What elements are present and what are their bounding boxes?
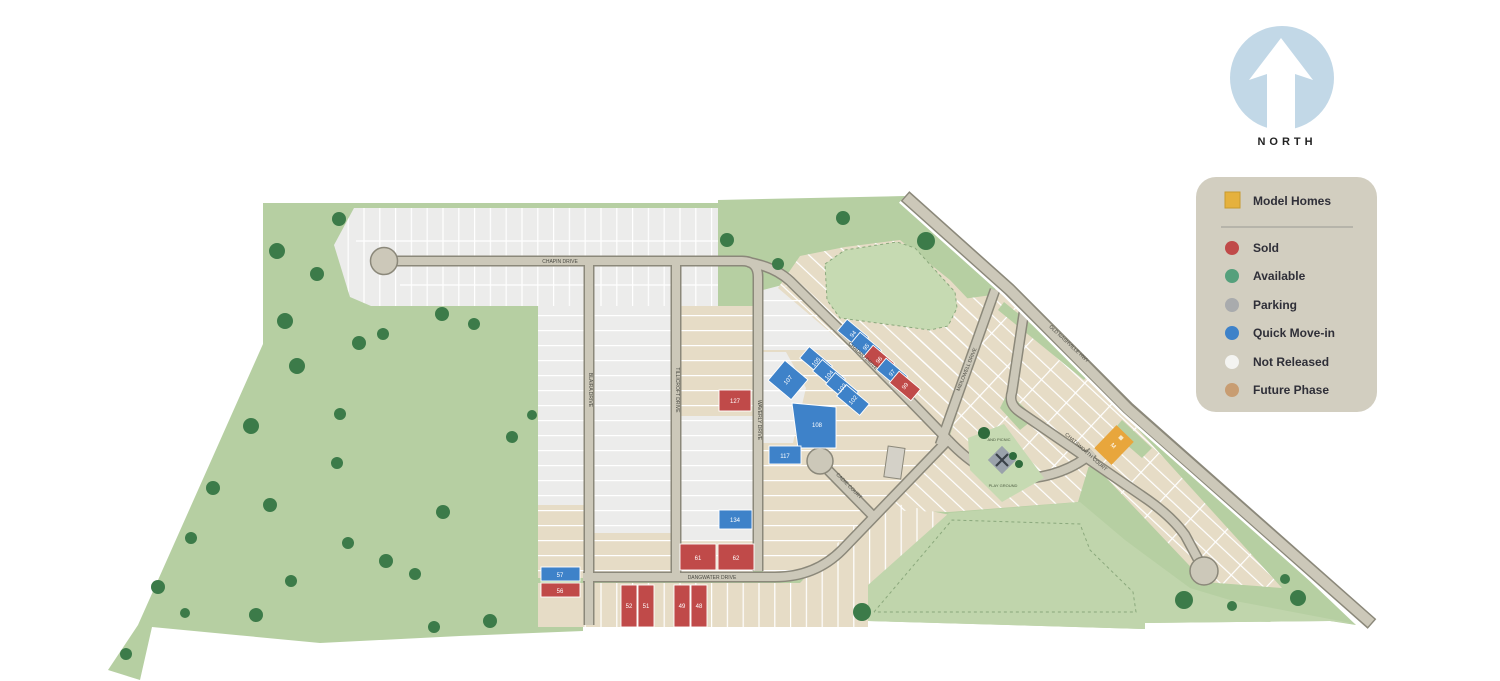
svg-text:PLAY GROUND: PLAY GROUND <box>989 483 1018 488</box>
svg-text:56: 56 <box>557 589 564 595</box>
svg-text:62: 62 <box>733 556 740 562</box>
svg-text:Not Released: Not Released <box>1253 355 1329 369</box>
svg-text:108: 108 <box>812 423 823 429</box>
svg-text:117: 117 <box>780 454 790 460</box>
svg-text:57: 57 <box>557 573 564 579</box>
svg-text:AND PICNIC: AND PICNIC <box>987 437 1010 442</box>
svg-text:52: 52 <box>626 604 633 610</box>
svg-text:Model Homes: Model Homes <box>1253 194 1331 208</box>
svg-text:49: 49 <box>679 604 686 610</box>
svg-text:134: 134 <box>730 518 741 524</box>
svg-text:Sold: Sold <box>1253 241 1279 255</box>
svg-text:61: 61 <box>695 556 702 562</box>
svg-text:BLAIRA DRIVE: BLAIRA DRIVE <box>587 373 593 408</box>
svg-text:CHAPIN DRIVE: CHAPIN DRIVE <box>542 259 578 265</box>
svg-text:WAVERLY DRIVE: WAVERLY DRIVE <box>756 400 762 441</box>
svg-text:Available: Available <box>1253 269 1306 283</box>
svg-text:Future Phase: Future Phase <box>1253 383 1329 397</box>
svg-text:51: 51 <box>643 604 650 610</box>
svg-text:TILLICROFT DRIVE: TILLICROFT DRIVE <box>674 367 680 413</box>
svg-text:48: 48 <box>696 604 703 610</box>
svg-text:127: 127 <box>730 399 741 405</box>
svg-text:Quick Move-in: Quick Move-in <box>1253 326 1335 340</box>
svg-text:DANGWATER DRIVE: DANGWATER DRIVE <box>688 575 737 581</box>
svg-text:Parking: Parking <box>1253 298 1297 312</box>
svg-text:NORTH: NORTH <box>1257 136 1316 148</box>
